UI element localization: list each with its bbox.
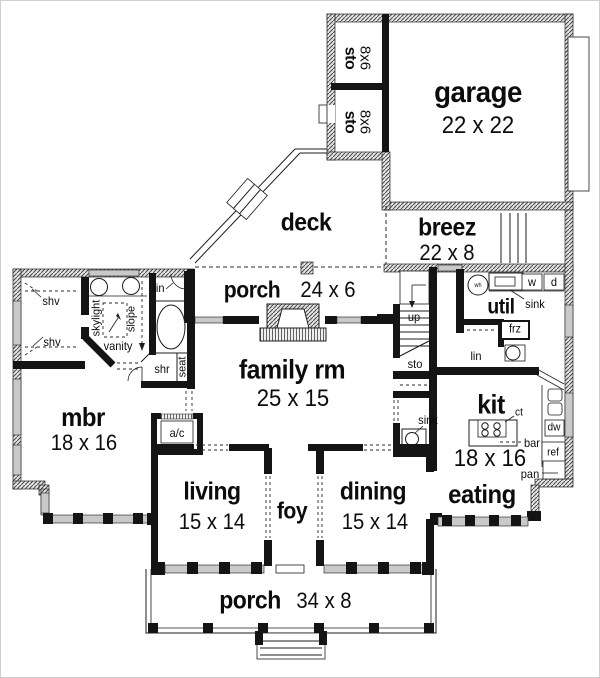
room-dims-garage: 22 x 22	[442, 114, 514, 138]
dishwasher-label: dw	[548, 423, 561, 434]
understair-sto-label: sto	[408, 358, 423, 370]
shelves-upper-label: shv	[42, 295, 59, 307]
room-dims-kit: 18 x 16	[454, 447, 526, 471]
ac-label: a/c	[170, 427, 185, 439]
room-dims-living: 15 x 14	[179, 511, 245, 533]
room-label-deck: deck	[281, 211, 332, 236]
room-label-foy: foy	[277, 500, 307, 523]
double-sink	[548, 403, 562, 415]
front-wall-windows	[151, 562, 434, 575]
seat-label: seat	[178, 357, 189, 378]
room-dims-front-porch: 34 x 8	[296, 590, 351, 612]
util-linen-label: lin	[470, 350, 481, 362]
room-label-family: family rm	[239, 357, 345, 384]
shelves-lower-label: shv	[43, 336, 60, 348]
double-sink	[548, 389, 562, 401]
mbr-window-band	[43, 513, 155, 525]
dryer-label: d	[551, 276, 557, 288]
bar-label: bar	[524, 437, 540, 449]
stairs-up-label: up	[408, 311, 420, 323]
fireplace	[260, 304, 326, 341]
room-label-sto-lower: 8x6 sto	[342, 110, 371, 134]
room-label-eating: eating	[448, 481, 516, 507]
utility-room	[437, 269, 564, 375]
room-label-dining: dining	[340, 480, 406, 505]
room-dims-rear-porch: 24 x 6	[300, 279, 355, 301]
front-porch	[146, 569, 436, 633]
porch-post	[301, 262, 313, 274]
freezer-label: frz	[509, 324, 521, 336]
pantry-label: pan	[521, 468, 539, 480]
eating-bay	[430, 511, 541, 526]
pantry-box	[543, 461, 565, 479]
room-label-living: living	[183, 480, 240, 505]
room-dims-mbr: 18 x 16	[51, 432, 117, 454]
slope-label: slope	[127, 306, 138, 332]
room-dims-dining: 15 x 14	[342, 511, 408, 533]
room-dims-sto-lower: 8x6	[357, 110, 371, 134]
breezeway-steps	[501, 213, 526, 263]
skylight-label: skylight	[92, 300, 103, 337]
room-label-kit: kit	[477, 392, 505, 419]
front-steps	[255, 631, 327, 659]
counter-label: ct	[515, 408, 523, 419]
sto-lower-name: sto	[342, 111, 357, 134]
hall-sink-label: sink	[418, 414, 438, 426]
util-sink-label: sink	[525, 298, 545, 310]
vanity-label: vanity	[104, 340, 133, 352]
garage-door	[568, 37, 589, 191]
room-label-garage: garage	[434, 78, 522, 108]
washer-label: w	[528, 276, 536, 288]
sto-upper-name: sto	[342, 47, 357, 70]
front-door	[276, 565, 304, 573]
bath-linen-label: lin	[153, 282, 164, 294]
refrigerator-label: ref	[547, 448, 559, 459]
room-label-breez: breez	[418, 216, 476, 241]
room-label-sto-upper: 8x6 sto	[342, 46, 371, 70]
room-label-util: util	[487, 297, 514, 318]
room-label-rear-porch: porch	[224, 279, 280, 302]
floor-plan-canvas: garage 22 x 22 8x6 sto 8x6 sto deck bree…	[0, 0, 600, 678]
room-dims-sto-upper: 8x6	[357, 46, 371, 70]
room-dims-breez: 22 x 8	[419, 242, 474, 264]
room-label-front-porch: porch	[219, 589, 281, 614]
shower-label: shr	[154, 363, 169, 375]
water-heater-label: wh	[474, 283, 481, 289]
room-dims-family: 25 x 15	[257, 387, 329, 411]
room-label-mbr: mbr	[61, 404, 105, 430]
